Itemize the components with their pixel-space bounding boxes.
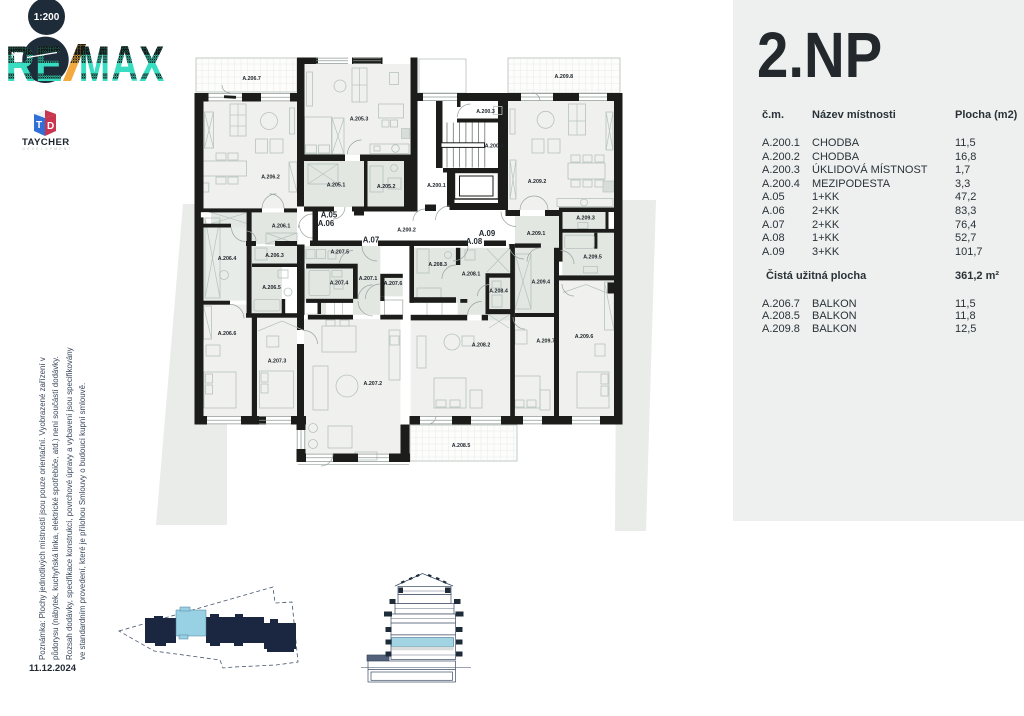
svg-text:A.06: A.06 <box>318 219 335 228</box>
svg-text:A.206.2: A.206.2 <box>261 174 280 180</box>
svg-text:A.207.1: A.207.1 <box>359 276 378 282</box>
svg-text:A.205.3: A.205.3 <box>350 117 369 123</box>
svg-text:A.208.5: A.208.5 <box>452 443 471 449</box>
svg-text:A.209.2: A.209.2 <box>528 179 547 185</box>
svg-text:A.208.3: A.208.3 <box>428 262 447 268</box>
svg-text:A.200.4: A.200.4 <box>485 143 504 149</box>
svg-text:A.209.4: A.209.4 <box>532 279 551 285</box>
svg-text:A.207.6: A.207.6 <box>384 281 403 287</box>
svg-text:A.206.5: A.206.5 <box>262 285 281 291</box>
svg-text:A.207.3: A.207.3 <box>268 358 287 364</box>
svg-text:A.200.2: A.200.2 <box>397 228 416 234</box>
svg-text:A.206.7: A.206.7 <box>242 76 261 82</box>
svg-text:A.07: A.07 <box>363 236 379 245</box>
svg-text:A.209.3: A.209.3 <box>576 216 595 222</box>
svg-text:A.206.1: A.206.1 <box>272 224 291 230</box>
svg-text:A.209.7: A.209.7 <box>536 339 555 345</box>
svg-text:A.208.1: A.208.1 <box>462 272 481 278</box>
svg-text:A.206.3: A.206.3 <box>265 253 284 259</box>
svg-text:A.205.1: A.205.1 <box>327 182 346 188</box>
svg-text:A.200.1: A.200.1 <box>427 183 446 189</box>
svg-text:A.207.5: A.207.5 <box>331 250 350 256</box>
svg-text:A.208.4: A.208.4 <box>489 288 508 294</box>
svg-text:A.208.2: A.208.2 <box>472 343 491 349</box>
svg-text:A.209.8: A.209.8 <box>555 74 574 80</box>
svg-text:A.206.6: A.206.6 <box>218 331 237 337</box>
svg-text:A.209.1: A.209.1 <box>527 231 546 237</box>
svg-text:A.209.6: A.209.6 <box>575 334 594 340</box>
svg-text:A.08: A.08 <box>466 237 483 246</box>
svg-text:A.207.4: A.207.4 <box>330 281 349 287</box>
svg-text:A.206.4: A.206.4 <box>218 256 237 262</box>
svg-text:A.207.2: A.207.2 <box>364 381 383 387</box>
svg-text:A.205.2: A.205.2 <box>377 184 396 190</box>
svg-text:A.200.3: A.200.3 <box>476 109 495 115</box>
svg-text:A.209.5: A.209.5 <box>583 255 602 261</box>
